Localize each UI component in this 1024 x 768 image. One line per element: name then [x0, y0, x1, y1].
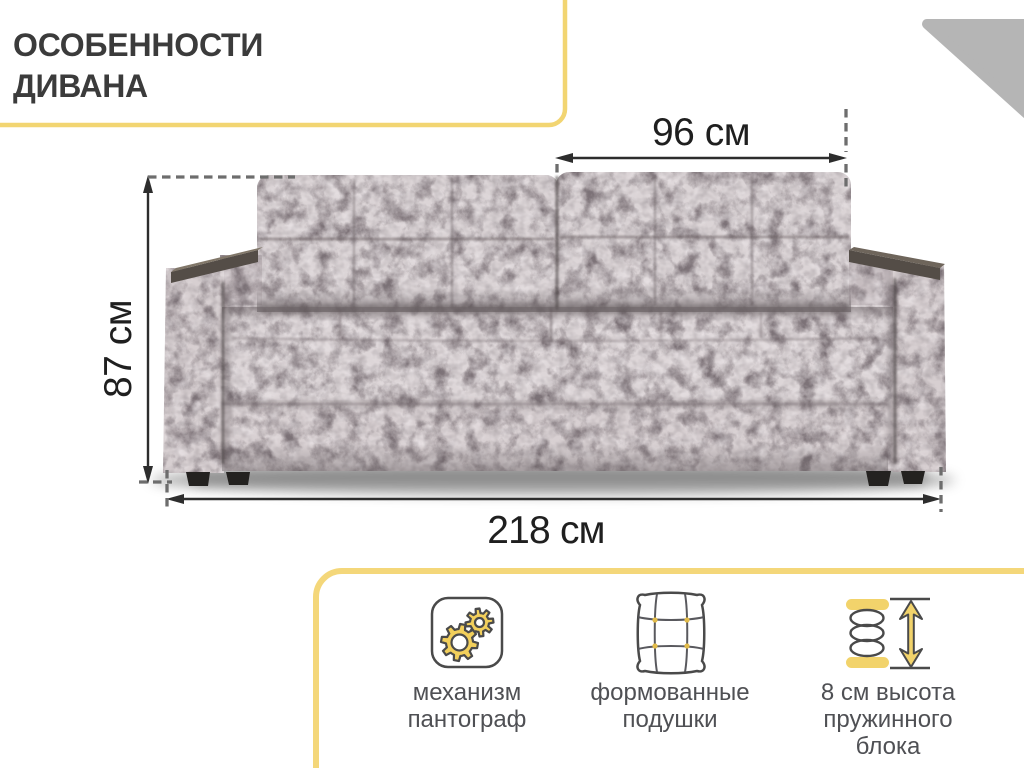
svg-text:ОСОБЕННОСТИ: ОСОБЕННОСТИ [13, 27, 263, 63]
svg-text:96 см: 96 см [652, 111, 750, 154]
svg-text:8 см высота: 8 см высота [821, 679, 956, 706]
svg-text:блока: блока [856, 733, 921, 760]
svg-text:пружинного: пружинного [823, 706, 952, 733]
svg-text:пантограф: пантограф [408, 706, 527, 733]
svg-text:218 см: 218 см [487, 509, 604, 552]
svg-text:подушки: подушки [623, 706, 718, 733]
svg-text:ДИВАНА: ДИВАНА [13, 68, 148, 104]
svg-text:87 см: 87 см [97, 300, 140, 398]
svg-text:формованные: формованные [590, 679, 749, 706]
svg-text:механизм: механизм [413, 679, 522, 706]
